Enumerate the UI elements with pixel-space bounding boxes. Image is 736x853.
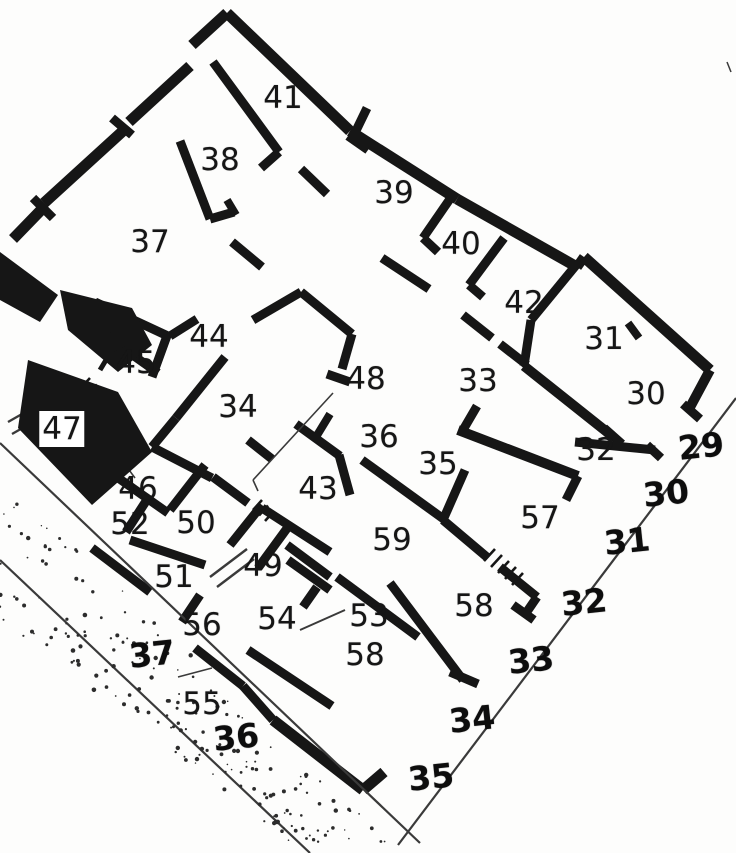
street-entrance-number-label: 36 bbox=[211, 715, 261, 759]
room-number-label: 32 bbox=[576, 432, 615, 468]
wall-segment bbox=[423, 238, 438, 252]
stipple-dot bbox=[176, 701, 180, 705]
stipple-dot bbox=[280, 829, 284, 833]
stipple-dot bbox=[136, 710, 139, 713]
wall-segment bbox=[301, 292, 352, 334]
stipple-dot bbox=[225, 713, 228, 716]
stipple-dot bbox=[192, 676, 195, 679]
wall-segment bbox=[248, 650, 332, 706]
stipple-dot bbox=[67, 635, 70, 638]
stipple-dot bbox=[348, 838, 350, 840]
room-number-label: 46 bbox=[118, 471, 157, 507]
doorway-dash bbox=[301, 169, 327, 194]
stipple-dot bbox=[251, 767, 254, 770]
stipple-dot bbox=[258, 802, 262, 806]
stipple-dot bbox=[306, 792, 308, 794]
stipple-dot bbox=[177, 722, 180, 725]
wall-segment bbox=[213, 477, 248, 503]
room-number-label: 50 bbox=[176, 505, 215, 541]
room-number-label: 52 bbox=[110, 506, 149, 542]
room-number-label: 55 bbox=[182, 686, 221, 722]
stipple-dot bbox=[289, 813, 292, 816]
stipple-dot bbox=[166, 714, 169, 717]
stipple-dot bbox=[327, 830, 329, 832]
room-number-label: 54 bbox=[257, 601, 296, 637]
stipple-dot bbox=[176, 746, 180, 750]
stipple-dot bbox=[48, 548, 52, 552]
stipple-dot bbox=[317, 829, 319, 831]
wall-segment bbox=[450, 672, 478, 684]
solid-black-mass bbox=[0, 252, 58, 322]
stipple-dot bbox=[370, 826, 374, 830]
wall-segment bbox=[524, 366, 612, 436]
stipple-dot bbox=[44, 562, 48, 566]
stipple-dot bbox=[170, 727, 172, 729]
stipple-dot bbox=[222, 787, 226, 791]
street-entrance-number-label: 29 bbox=[676, 424, 726, 468]
wall-segment bbox=[500, 567, 537, 597]
stipple-dot bbox=[231, 769, 233, 771]
stipple-dot bbox=[27, 557, 29, 559]
wall-segment bbox=[44, 130, 124, 203]
street-entrance-number-label: 32 bbox=[559, 580, 609, 624]
stipple-dot bbox=[71, 648, 76, 653]
stipple-dot bbox=[240, 771, 243, 774]
doorway-dash bbox=[232, 242, 262, 267]
stipple-dot bbox=[282, 789, 286, 793]
stipple-dot bbox=[283, 827, 285, 829]
wall-segment bbox=[261, 152, 279, 168]
stipple-dot bbox=[212, 773, 214, 775]
stipple-dot bbox=[291, 825, 293, 827]
street-entrance-number-label: 35 bbox=[406, 755, 456, 799]
stipple-dot bbox=[175, 751, 177, 753]
stipple-dot bbox=[110, 637, 112, 639]
street-entrance-number-label: 37 bbox=[127, 632, 177, 676]
stipple-dot bbox=[177, 669, 179, 671]
room-number-label: 36 bbox=[359, 419, 398, 455]
street-entrance-number-label: 34 bbox=[447, 697, 497, 741]
street-line bbox=[210, 549, 247, 577]
stipple-dot bbox=[265, 796, 268, 799]
stipple-dot bbox=[54, 627, 58, 631]
stipple-dot bbox=[178, 693, 180, 695]
street-line bbox=[253, 480, 258, 491]
wall-segment bbox=[170, 465, 205, 510]
room-number-label: 59 bbox=[372, 522, 411, 558]
wall-segment bbox=[129, 66, 190, 122]
wall-segment bbox=[463, 406, 477, 430]
stipple-dot bbox=[0, 593, 3, 597]
stipple-dot bbox=[64, 546, 66, 548]
street-line bbox=[727, 62, 731, 72]
stipple-dot bbox=[319, 780, 321, 782]
stipple-dot bbox=[172, 725, 175, 728]
stipple-dot bbox=[142, 620, 145, 623]
stipple-dot bbox=[115, 633, 119, 637]
stipple-dot bbox=[239, 785, 242, 788]
wall-segment bbox=[628, 323, 639, 338]
stipple-dot bbox=[324, 834, 327, 837]
stipple-dot bbox=[74, 577, 78, 581]
stipple-dot bbox=[299, 783, 302, 786]
wall-segment bbox=[469, 285, 483, 297]
stipple-dot bbox=[184, 756, 186, 758]
stipple-dot bbox=[58, 537, 61, 540]
room-number-label: 30 bbox=[626, 376, 665, 412]
room-number-label: 43 bbox=[298, 471, 337, 507]
stipple-dot bbox=[44, 544, 47, 547]
stipple-dot bbox=[13, 596, 15, 598]
stipple-dot bbox=[331, 826, 335, 830]
stipple-dot bbox=[49, 636, 53, 640]
street-line bbox=[300, 610, 345, 630]
stipple-dot bbox=[270, 746, 272, 748]
stipple-dot bbox=[206, 749, 209, 752]
stipple-dot bbox=[294, 787, 298, 791]
stipple-dot bbox=[65, 623, 67, 625]
street-line bbox=[253, 393, 333, 480]
stipple-dot bbox=[15, 503, 18, 506]
stipple-dot bbox=[305, 837, 308, 840]
stipple-dot bbox=[179, 728, 183, 732]
stipple-dot bbox=[65, 618, 68, 621]
stipple-dot bbox=[128, 693, 132, 697]
room-number-label: 35 bbox=[418, 446, 457, 482]
room-number-label: 58 bbox=[454, 588, 493, 624]
stipple-dot bbox=[288, 839, 290, 841]
stipple-dot bbox=[200, 747, 204, 751]
stipple-dot bbox=[176, 707, 179, 710]
room-number-label: 38 bbox=[200, 142, 239, 178]
stipple-dot bbox=[149, 675, 153, 679]
wall-segment bbox=[390, 583, 463, 680]
stipple-dot bbox=[301, 827, 304, 830]
room-number-label: 49 bbox=[243, 548, 282, 584]
stipple-dot bbox=[185, 728, 187, 730]
stipple-dot bbox=[91, 590, 94, 593]
street-entrance-number-label: 33 bbox=[506, 638, 556, 682]
stipple-dot bbox=[300, 776, 302, 778]
stipple-dot bbox=[105, 685, 109, 689]
wall-segment bbox=[566, 476, 578, 500]
stipple-dot bbox=[347, 808, 351, 812]
stipple-dot bbox=[94, 674, 98, 678]
stipple-dot bbox=[384, 841, 386, 843]
room-number-label: 37 bbox=[130, 224, 169, 260]
room-number-label: 41 bbox=[263, 80, 302, 116]
wall-segment bbox=[303, 587, 317, 607]
stipple-dot bbox=[318, 802, 322, 806]
stipple-dot bbox=[26, 536, 30, 540]
stipple-dot bbox=[254, 761, 256, 763]
stipple-dot bbox=[198, 754, 200, 756]
room-number-label: 40 bbox=[441, 226, 480, 262]
stipple-dot bbox=[124, 611, 126, 613]
room-number-label: 57 bbox=[520, 500, 559, 536]
stipple-dot bbox=[112, 648, 115, 651]
stair-hatch-bar bbox=[491, 555, 502, 567]
floor-plan: 4138393740423130444548333447363532464352… bbox=[0, 0, 736, 853]
stipple-dot bbox=[246, 761, 248, 763]
stipple-dot bbox=[195, 757, 199, 761]
room-number-label: 58 bbox=[345, 637, 384, 673]
stipple-dot bbox=[38, 597, 39, 598]
doorway-dash bbox=[382, 258, 429, 289]
wall-segment bbox=[253, 292, 301, 320]
room-number-label: 48 bbox=[346, 361, 385, 397]
wall-segment bbox=[443, 520, 488, 558]
stipple-dot bbox=[0, 563, 2, 565]
stipple-dot bbox=[92, 688, 97, 693]
room-number-label: 45 bbox=[116, 345, 155, 381]
stipple-dot bbox=[275, 820, 280, 825]
room-number-label: 33 bbox=[458, 363, 497, 399]
stipple-dot bbox=[15, 597, 19, 601]
stipple-dot bbox=[100, 616, 103, 619]
stipple-dot bbox=[263, 792, 266, 795]
stipple-dot bbox=[8, 525, 11, 528]
wall-segment bbox=[13, 207, 44, 239]
stipple-dot bbox=[46, 528, 48, 530]
wall-segment bbox=[230, 505, 262, 545]
stipple-dot bbox=[76, 659, 80, 663]
room-number-label: 44 bbox=[189, 319, 228, 355]
stipple-dot bbox=[84, 634, 87, 637]
stipple-dot bbox=[304, 773, 308, 777]
stipple-dot bbox=[77, 634, 80, 637]
stipple-dot bbox=[65, 632, 67, 634]
stipple-dot bbox=[73, 660, 75, 662]
wall-segment bbox=[243, 686, 273, 720]
wall-segment bbox=[248, 440, 272, 459]
room-number-label: 53 bbox=[349, 598, 388, 634]
stipple-dot bbox=[45, 643, 48, 646]
stipple-dot bbox=[115, 695, 117, 697]
room-number-label: 42 bbox=[504, 285, 543, 321]
wall-segment bbox=[316, 414, 330, 437]
stipple-dot bbox=[122, 641, 124, 643]
stipple-dot bbox=[22, 635, 24, 637]
street-entrance-number-label: 30 bbox=[641, 471, 691, 515]
wall-segment bbox=[458, 430, 578, 476]
stipple-dot bbox=[224, 771, 226, 773]
stipple-dot bbox=[71, 661, 74, 664]
stipple-dot bbox=[317, 841, 319, 843]
room-number-label: 39 bbox=[374, 175, 413, 211]
stipple-dot bbox=[195, 762, 196, 763]
stipple-dot bbox=[294, 829, 298, 833]
stipple-dot bbox=[312, 838, 315, 841]
room-number-label: 31 bbox=[584, 321, 623, 357]
stipple-dot bbox=[41, 525, 42, 526]
stipple-dot bbox=[166, 699, 170, 703]
stipple-dot bbox=[22, 604, 26, 608]
wall-segment bbox=[363, 772, 384, 790]
stipple-dot bbox=[227, 701, 229, 703]
stipple-dot bbox=[227, 764, 229, 766]
street-line bbox=[178, 668, 212, 677]
wall-segment bbox=[339, 455, 350, 495]
stipple-dot bbox=[252, 787, 256, 791]
stipple-dot bbox=[269, 794, 273, 798]
stipple-dot bbox=[20, 532, 23, 535]
street-entrance-number-label: 31 bbox=[602, 519, 652, 563]
room-number-label: 56 bbox=[182, 607, 221, 643]
stipple-dot bbox=[122, 702, 126, 706]
stipple-dot bbox=[30, 630, 34, 634]
stipple-dot bbox=[189, 653, 193, 657]
stipple-dot bbox=[157, 721, 160, 724]
wall-segment bbox=[192, 13, 227, 45]
stipple-dot bbox=[344, 829, 345, 830]
stipple-dot bbox=[380, 840, 383, 843]
stipple-dot bbox=[300, 814, 303, 817]
stipple-dot bbox=[245, 766, 247, 768]
stipple-dot bbox=[184, 758, 188, 762]
stipple-dot bbox=[201, 730, 204, 733]
doorway-dash bbox=[463, 315, 492, 338]
stipple-dot bbox=[147, 711, 151, 715]
stipple-dot bbox=[3, 619, 5, 621]
stipple-dot bbox=[81, 579, 84, 582]
stipple-dot bbox=[122, 590, 123, 591]
stipple-dot bbox=[0, 606, 1, 608]
stipple-dot bbox=[137, 687, 141, 691]
stipple-dot bbox=[111, 664, 115, 668]
room-number-label: 47 bbox=[39, 411, 84, 447]
stipple-dot bbox=[77, 663, 81, 667]
stipple-dot bbox=[269, 767, 273, 771]
stipple-dot bbox=[13, 507, 15, 509]
stipple-dot bbox=[83, 613, 88, 618]
stipple-dot bbox=[222, 700, 226, 704]
wall-segment bbox=[92, 548, 150, 592]
wall-segment bbox=[683, 404, 700, 419]
wall-segment bbox=[688, 370, 710, 411]
stipple-dot bbox=[284, 812, 286, 814]
wall-segment bbox=[273, 720, 363, 790]
stipple-dot bbox=[263, 820, 265, 822]
stipple-dot bbox=[193, 740, 197, 744]
stipple-dot bbox=[152, 621, 156, 625]
stipple-dot bbox=[335, 809, 337, 811]
stipple-dot bbox=[78, 644, 82, 648]
stipple-dot bbox=[332, 800, 334, 802]
stipple-dot bbox=[74, 548, 77, 551]
stipple-dot bbox=[273, 815, 275, 817]
stipple-dot bbox=[104, 669, 108, 673]
stipple-dot bbox=[358, 813, 360, 815]
room-number-label: 51 bbox=[154, 559, 193, 595]
room-number-label: 34 bbox=[218, 389, 257, 425]
stipple-dot bbox=[41, 559, 44, 562]
stipple-dot bbox=[3, 513, 5, 515]
wall-segment bbox=[152, 418, 176, 447]
stipple-dot bbox=[286, 809, 289, 812]
stipple-dot bbox=[309, 835, 311, 837]
stipple-dot bbox=[83, 630, 86, 633]
stipple-dot bbox=[255, 768, 259, 772]
